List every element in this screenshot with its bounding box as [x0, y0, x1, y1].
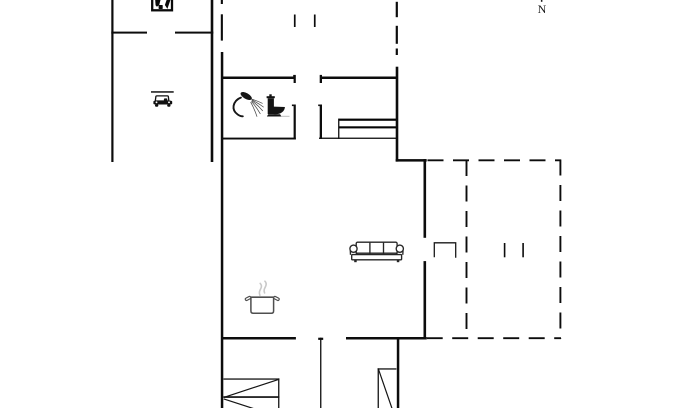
svg-text:N: N — [538, 2, 547, 16]
